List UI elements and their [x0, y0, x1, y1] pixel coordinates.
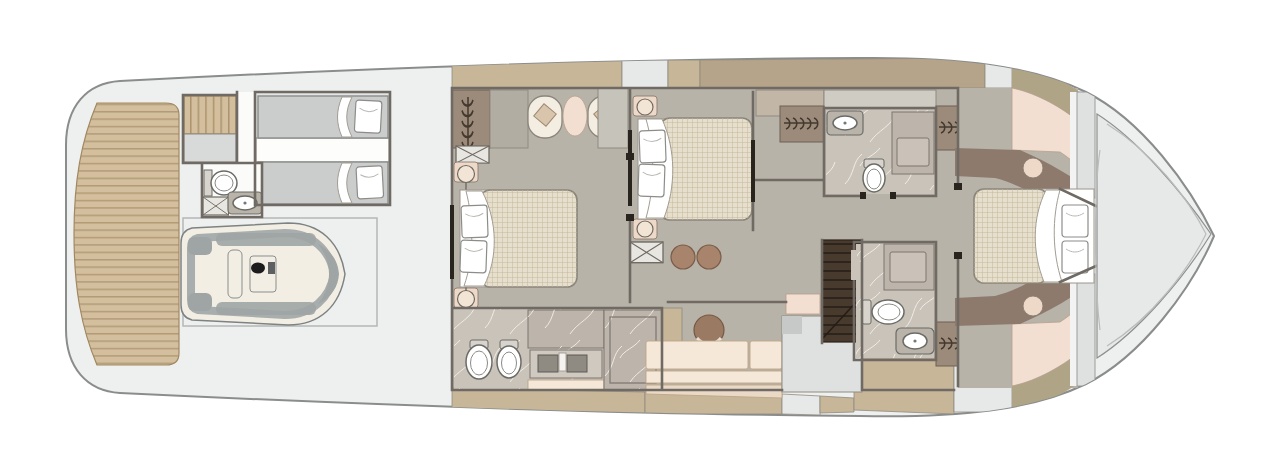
reading-lamp-icon — [637, 99, 653, 115]
tender-seat — [228, 250, 242, 298]
toilet — [466, 345, 492, 379]
guest-double-bed — [460, 190, 577, 287]
steering-wheel-icon — [251, 263, 265, 274]
pillow — [639, 130, 666, 163]
stern-pad — [188, 293, 212, 311]
pillow — [638, 164, 665, 197]
reading-lamp-icon — [637, 221, 653, 237]
band-dark-tan — [700, 58, 985, 88]
stern-stairs — [184, 96, 236, 162]
lounge-chair — [694, 315, 724, 345]
owner-double-bed — [974, 189, 1094, 283]
band-tan — [820, 396, 854, 413]
yacht-floor-plan: Yacht deck floor plan — [0, 0, 1280, 473]
crew-bed-upper — [258, 96, 388, 138]
sink-drain — [243, 201, 246, 204]
yacht-floor-plan-canvas: Yacht deck floor plan — [0, 0, 1280, 473]
luggage-rack-icon — [203, 197, 229, 215]
stair-tread-lines — [184, 96, 236, 134]
sink-drain — [843, 121, 846, 124]
bidet — [497, 346, 521, 378]
console-panel — [268, 262, 275, 274]
cabinet — [598, 88, 628, 148]
sink-drain — [913, 339, 916, 342]
door-opening — [955, 190, 961, 252]
band-tan — [662, 308, 682, 344]
door-opening — [851, 250, 857, 280]
pillow — [1062, 205, 1088, 237]
shower — [892, 112, 934, 174]
armchair — [528, 96, 562, 138]
side-table — [563, 96, 587, 136]
stair-landing — [184, 134, 236, 162]
sofa-panel — [750, 341, 782, 369]
bulkhead-gap — [1070, 92, 1077, 198]
vanity-kick — [528, 380, 604, 390]
closet — [490, 90, 528, 148]
pillow — [461, 205, 488, 238]
reading-lamp-icon — [458, 166, 475, 183]
band-gap — [782, 394, 820, 415]
sink-basin — [567, 355, 587, 372]
forward-bathroom-upper — [826, 110, 934, 194]
stern-pad — [188, 237, 212, 255]
pillow — [356, 166, 384, 199]
crew-sink — [228, 192, 262, 214]
sink-basin — [538, 355, 558, 372]
door-jamb — [860, 192, 866, 199]
reading-lamp-icon — [1023, 296, 1043, 316]
luggage-rack-icon — [456, 146, 489, 163]
jet-tender — [181, 223, 345, 325]
duvet-texture — [660, 118, 752, 220]
crew-cabin — [255, 92, 390, 205]
shower-tray — [890, 252, 926, 282]
bow-bulkhead — [1077, 274, 1095, 386]
luggage-rack-icon — [630, 242, 663, 263]
shower — [884, 244, 934, 290]
toilet — [863, 164, 885, 192]
crew-bathroom — [202, 163, 262, 217]
reading-lamp-icon — [1023, 158, 1043, 178]
owner-cabin-bow — [955, 63, 1096, 411]
hanging-locker — [452, 90, 490, 148]
band-tan — [452, 60, 622, 90]
band-tan — [668, 60, 700, 88]
crew-bed-lower — [258, 162, 388, 204]
crew-nightstand — [256, 138, 389, 162]
stool — [671, 245, 695, 269]
stool — [697, 245, 721, 269]
headboard-wall — [628, 130, 632, 206]
bow-bulkhead — [1077, 92, 1095, 198]
landing-cabinet — [786, 294, 820, 314]
vanity — [528, 310, 604, 390]
pillow — [354, 100, 382, 133]
door-jamb — [954, 252, 962, 259]
teak-planking — [74, 103, 179, 365]
pillow — [1062, 241, 1088, 273]
vanity-veins — [528, 310, 604, 348]
side-deck — [216, 233, 316, 246]
tv-partition — [751, 140, 755, 202]
sink-unit — [896, 328, 934, 354]
pillow — [460, 240, 487, 273]
door-jamb — [954, 183, 962, 190]
headboard-wall — [450, 205, 454, 279]
forward-bathroom-lower — [856, 244, 934, 358]
vip-double-bed — [638, 118, 752, 220]
sink-unit — [827, 111, 863, 135]
bulkhead-gap — [1070, 274, 1077, 386]
swim-platform — [74, 103, 179, 365]
door-jamb — [890, 192, 896, 199]
reading-lamp-icon — [458, 291, 475, 308]
door-jamb — [626, 214, 634, 221]
sofa-base — [646, 371, 782, 383]
toilet-tank — [862, 300, 871, 324]
landing-step — [782, 316, 802, 334]
band-gap — [985, 58, 1012, 88]
cabinet — [824, 90, 936, 108]
side-deck — [216, 302, 316, 315]
shower-tray — [897, 138, 929, 166]
band-gap — [622, 60, 668, 88]
soap-tray — [559, 353, 566, 371]
